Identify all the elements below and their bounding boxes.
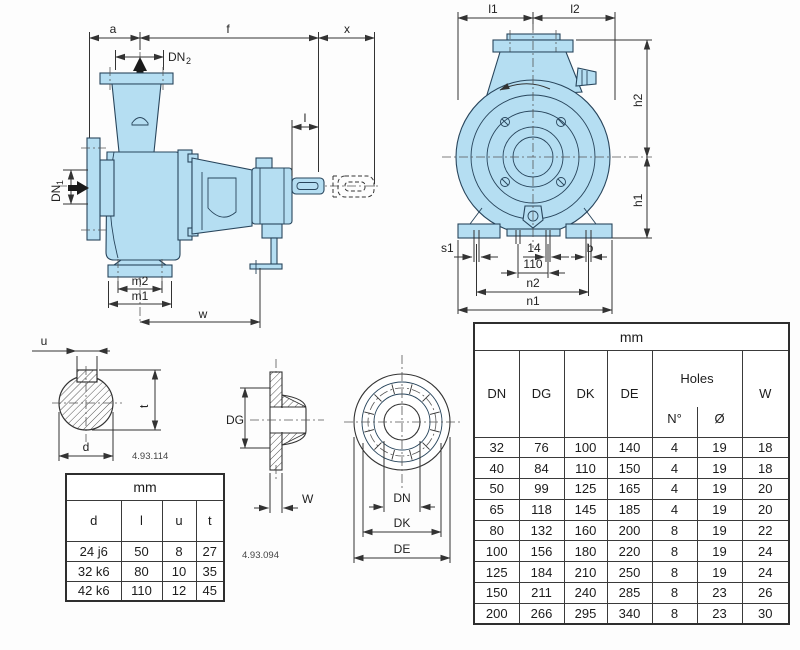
cell-holes-n: 8 (652, 520, 697, 541)
shaft-table-col-u: u (162, 500, 196, 541)
cell-dn: 150 (474, 583, 519, 604)
dim-l2-label: l2 (570, 2, 580, 16)
cell-w: 20 (742, 479, 789, 500)
cell-de: 250 (607, 562, 652, 583)
cell-dk: 145 (564, 499, 607, 520)
holes-header: Holes (653, 351, 742, 407)
flange-table-unit-header: mm (474, 323, 789, 350)
dim-n1-label: n1 (526, 294, 540, 308)
cell-dg: 211 (519, 583, 564, 604)
pump-front-view-drawing: l1 l2 (430, 0, 800, 330)
dim-dg-label: DG (226, 413, 244, 427)
pump-side-view-drawing: a f x DN 2 (0, 0, 430, 335)
cell-holes-n: 8 (652, 583, 697, 604)
dimension-l: l (292, 111, 319, 176)
suction-flange (87, 138, 100, 240)
cell-w: 20 (742, 499, 789, 520)
cell-holes-n: 4 (652, 458, 697, 479)
cell-holes-n: 8 (652, 562, 697, 583)
dim-s1-label: s1 (441, 241, 454, 255)
cell-dg: 84 (519, 458, 564, 479)
dim-w-label: w (198, 307, 208, 321)
flange-table-col-w: W (742, 350, 789, 437)
shaft-table-col-l: l (121, 500, 162, 541)
right-foot (566, 224, 612, 238)
cell-holes-d: 19 (697, 499, 742, 520)
cell-dg: 118 (519, 499, 564, 520)
cell-dg: 76 (519, 437, 564, 458)
dim-u-label: u (41, 334, 48, 348)
cell-holes-n: 8 (652, 603, 697, 624)
flange-side-section (250, 359, 324, 481)
table-row: 150 211 240 285 8 23 26 (474, 583, 789, 604)
holes-subcol-number: N° (653, 407, 697, 437)
cell-dg: 266 (519, 603, 564, 624)
dim-f-label: f (226, 22, 230, 36)
flange-table-col-dk: DK (564, 350, 607, 437)
pump-side-body (81, 67, 324, 282)
dim-t-label: t (137, 404, 151, 408)
cell-holes-n: 4 (652, 437, 697, 458)
dim-a-label: a (110, 22, 117, 36)
cell-de: 285 (607, 583, 652, 604)
casing-pedestal (114, 260, 166, 265)
drawing-code-flange: 4.93.094 (242, 550, 279, 561)
cell-d: 32 k6 (66, 561, 121, 581)
cell-dn: 125 (474, 562, 519, 583)
cell-de: 185 (607, 499, 652, 520)
table-row: 50 99 125 165 4 19 20 (474, 479, 789, 500)
cell-dk: 125 (564, 479, 607, 500)
cell-dg: 132 (519, 520, 564, 541)
dim-h1-label: h1 (631, 193, 645, 207)
dim-dn1-label: DN (49, 185, 63, 202)
cell-w: 30 (742, 603, 789, 624)
flange-front-view (344, 355, 462, 491)
cell-holes-n: 8 (652, 541, 697, 562)
dim-h2-label: h2 (631, 93, 645, 107)
flange-table-col-dn: DN (474, 350, 519, 437)
cell-holes-d: 23 (697, 603, 742, 624)
cell-dg: 99 (519, 479, 564, 500)
flange-table-col-de: DE (607, 350, 652, 437)
cell-de: 150 (607, 458, 652, 479)
table-row: 200 266 295 340 8 23 30 (474, 603, 789, 624)
cell-dn: 200 (474, 603, 519, 624)
dim-w-flange-label: W (302, 492, 314, 506)
cell-w: 24 (742, 541, 789, 562)
cell-holes-n: 4 (652, 499, 697, 520)
cell-dk: 160 (564, 520, 607, 541)
dim-x-label: x (344, 22, 350, 36)
dim-dn2-label: DN (168, 50, 185, 64)
dim-dk-flange-label: DK (394, 516, 411, 530)
dimension-s1: s1 (441, 241, 498, 257)
cell-holes-d: 19 (697, 541, 742, 562)
dim-slot-width-label: 14 (527, 241, 541, 255)
cell-dk: 210 (564, 562, 607, 583)
shaft-cross-section (52, 366, 122, 442)
flange-table-col-holes: Holes N° Ø (652, 350, 742, 437)
keyway-end-view-detail (333, 176, 374, 197)
dim-d-label: d (83, 440, 90, 454)
cell-de: 220 (607, 541, 652, 562)
dimension-w-flange: W (254, 473, 314, 513)
cell-dk: 100 (564, 437, 607, 458)
shaft-table-unit-header: mm (66, 474, 224, 500)
bearing-housing (252, 168, 292, 224)
flange-dimensions-table: mm DN DG DK DE Holes N° Ø W 32 76 100 14… (473, 322, 790, 625)
cell-d: 24 j6 (66, 541, 121, 561)
cell-t: 35 (196, 561, 224, 581)
dimension-u: u (32, 334, 110, 370)
dimension-dg: DG (226, 388, 270, 448)
shaft-dimensions-table: mm d l u t 24 j6 50 8 27 32 k6 80 10 35 … (65, 473, 225, 602)
cell-holes-n: 4 (652, 479, 697, 500)
cell-d: 42 k6 (66, 581, 121, 601)
table-row: 32 k6 80 10 35 (66, 561, 224, 581)
support-block (262, 224, 282, 238)
cell-dg: 184 (519, 562, 564, 583)
support-strap (271, 238, 277, 266)
cell-t: 45 (196, 581, 224, 601)
table-row: 24 j6 50 8 27 (66, 541, 224, 561)
cell-de: 200 (607, 520, 652, 541)
dim-l-label: l (304, 111, 307, 125)
table-row: 125 184 210 250 8 19 24 (474, 562, 789, 583)
dim-dn2-subscript: 2 (186, 56, 191, 66)
dim-l1-label: l1 (488, 2, 498, 16)
dim-n2-label: n2 (526, 276, 540, 290)
dimension-dn2: DN 2 (116, 50, 192, 70)
cell-dn: 80 (474, 520, 519, 541)
cell-holes-d: 19 (697, 437, 742, 458)
center-pedestal (507, 229, 560, 236)
cell-dn: 100 (474, 541, 519, 562)
keyway-section (77, 370, 97, 382)
cell-l: 110 (121, 581, 162, 601)
cell-dk: 110 (564, 458, 607, 479)
cell-dg: 156 (519, 541, 564, 562)
cell-dn: 32 (474, 437, 519, 458)
pump-front-body (456, 30, 612, 262)
volute-casing (106, 152, 180, 260)
dim-de-flange-label: DE (394, 542, 411, 556)
cell-holes-d: 19 (697, 458, 742, 479)
cell-l: 50 (121, 541, 162, 561)
flange-table-col-dg: DG (519, 350, 564, 437)
dim-b-label: b (587, 241, 594, 255)
dim-m1-label: m1 (132, 289, 149, 303)
cell-holes-d: 19 (697, 479, 742, 500)
cell-de: 340 (607, 603, 652, 624)
cell-dk: 295 (564, 603, 607, 624)
table-row: 32 76 100 140 4 19 18 (474, 437, 789, 458)
support-foot (250, 264, 282, 269)
cell-dn: 50 (474, 479, 519, 500)
backplate (178, 150, 192, 240)
cell-dn: 65 (474, 499, 519, 520)
cell-w: 26 (742, 583, 789, 604)
table-row: 80 132 160 200 8 19 22 (474, 520, 789, 541)
cell-u: 10 (162, 561, 196, 581)
table-row: 65 118 145 185 4 19 20 (474, 499, 789, 520)
cell-holes-d: 19 (697, 562, 742, 583)
cell-t: 27 (196, 541, 224, 561)
dim-m2-label: m2 (132, 274, 149, 288)
shaft-table-col-t: t (196, 500, 224, 541)
dimension-h1: h1 (612, 157, 652, 238)
cell-holes-d: 19 (697, 520, 742, 541)
dim-dn-flange-label: DN (393, 491, 410, 505)
discharge-neck (112, 84, 161, 152)
drawing-code-shaft: 4.93.114 (132, 451, 168, 462)
cell-de: 140 (607, 437, 652, 458)
cell-u: 8 (162, 541, 196, 561)
table-row: 100 156 180 220 8 19 24 (474, 541, 789, 562)
cell-dk: 180 (564, 541, 607, 562)
bearing-bracket (192, 158, 252, 234)
cell-dk: 240 (564, 583, 607, 604)
cell-w: 22 (742, 520, 789, 541)
table-row: 42 k6 110 12 45 (66, 581, 224, 601)
holes-subcol-diameter: Ø (697, 407, 742, 437)
cell-l: 80 (121, 561, 162, 581)
cell-w: 18 (742, 458, 789, 479)
discharge-flange (100, 73, 173, 84)
cell-de: 165 (607, 479, 652, 500)
cell-w: 18 (742, 437, 789, 458)
cell-u: 12 (162, 581, 196, 601)
table-row: 40 84 110 150 4 19 18 (474, 458, 789, 479)
dim-slot-spacing-label: 110 (523, 257, 542, 271)
cell-w: 24 (742, 562, 789, 583)
shaft-table-col-d: d (66, 500, 121, 541)
cell-dn: 40 (474, 458, 519, 479)
shaft-end-detail-drawing: u t d 4.93.114 (20, 330, 230, 470)
flange-detail-drawing: DG W 4.93.094 (222, 345, 465, 570)
cell-holes-d: 23 (697, 583, 742, 604)
suction-hub (100, 160, 114, 216)
side-boss (576, 68, 596, 86)
dim-dn1-subscript: 1 (55, 180, 65, 185)
